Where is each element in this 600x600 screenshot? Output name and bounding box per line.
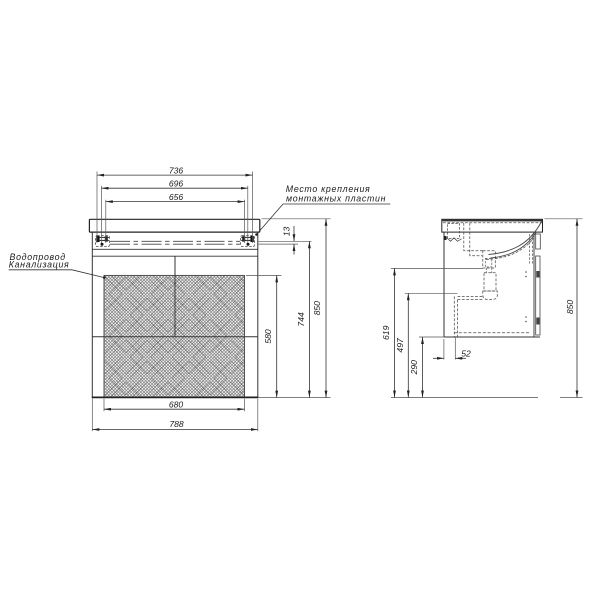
svg-text:290: 290: [409, 360, 419, 376]
svg-text:696: 696: [169, 178, 184, 188]
svg-text:850: 850: [312, 301, 322, 316]
svg-text:52: 52: [461, 349, 471, 359]
svg-text:744: 744: [296, 312, 306, 327]
svg-text:Канализация: Канализация: [9, 260, 70, 270]
svg-text:656: 656: [169, 192, 184, 202]
svg-text:619: 619: [381, 325, 391, 340]
svg-text:736: 736: [169, 165, 184, 175]
svg-text:850: 850: [565, 300, 575, 315]
svg-text:13: 13: [282, 227, 292, 237]
svg-text:680: 680: [169, 400, 184, 410]
svg-text:497: 497: [395, 337, 405, 353]
svg-text:580: 580: [263, 329, 273, 344]
svg-text:монтажных пластин: монтажных пластин: [286, 193, 386, 203]
svg-text:788: 788: [169, 419, 184, 429]
